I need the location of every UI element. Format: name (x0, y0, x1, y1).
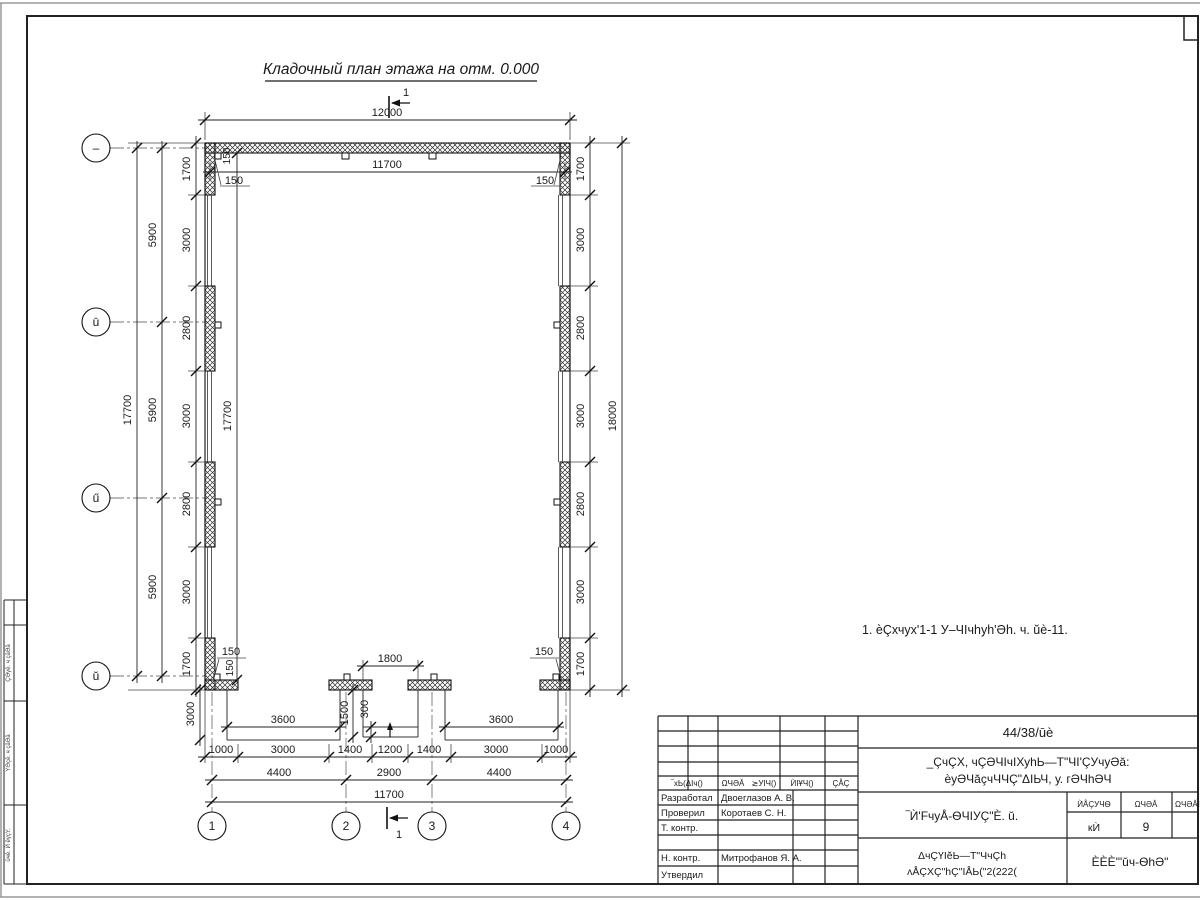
dimension-labels: 12000 11700 17700 5900 5900 5900 1700 30… (122, 107, 619, 801)
sheet-value: 9 (1143, 820, 1150, 834)
wall-anchor-marks (214, 153, 560, 680)
role-checked: Проверил (661, 808, 705, 819)
axis-bottom-4: 4 (563, 819, 570, 833)
axis-left-2: ū (93, 315, 100, 329)
name-checked: Коротаев С. Н. (721, 808, 786, 819)
drawing-sheet: ÇƏγĕ. ч çăƏă ΥƏçĕ. ч çăƏă ŭчĕ. Ѝ ĕγçΥ. К… (0, 0, 1200, 900)
dim-ramp-right: 3600 (489, 714, 513, 726)
note-text: 1. ѐÇхчух'1-1 У‒ЧIчhуh'Əh. ч. ŭè-11. (862, 623, 1068, 637)
section-label-top: 1 (403, 87, 409, 99)
project-name-line1: _ÇчÇХ, чÇƏЧIчIХуhЬ—Т"ЧI'ÇУчуƏă: (926, 755, 1130, 769)
dim-bottom-chain-4: 1200 (378, 744, 402, 756)
doc-code: 44/38/ūè (1003, 725, 1054, 740)
dim-left-spacing-2: 5900 (147, 398, 159, 422)
dim-right-chain-7: 1700 (575, 652, 587, 676)
axis-left-4: ŭ (93, 669, 100, 683)
axis-bottom-3: 3 (429, 819, 436, 833)
stage-header: ЍÅÇУЧѲ (1077, 800, 1111, 809)
drawing-frame (27, 16, 1198, 884)
rev-header-list: ΩЧƏĂ (722, 779, 745, 788)
sheets-header: ΩЧƏĂIУ (1175, 800, 1200, 809)
wall-outlines (205, 143, 570, 690)
dim-right-chain-1: 1700 (575, 157, 587, 181)
dim-bottom-total: 11700 (374, 789, 404, 801)
offset-leaders (214, 156, 561, 678)
stage-value: кЍ (1088, 821, 1100, 834)
axis-grid (110, 148, 566, 812)
dim-offset-br: 150 (535, 646, 553, 658)
dim-left-chain-2: 3000 (181, 228, 193, 252)
dimension-lines (137, 120, 622, 802)
dim-right-chain-3: 2800 (575, 316, 587, 340)
dim-bottom-chain-2: 3000 (271, 744, 295, 756)
dim-ramp-left: 3600 (271, 714, 295, 726)
dim-bottom-chain-1: 1000 (209, 744, 233, 756)
margin-label-1: ÇƏγĕ. ч çăƏă (6, 644, 12, 682)
role-tcontrol: Т. контр. (661, 823, 698, 834)
rev-header-izm: ‾хЬ(ΔIч() (670, 779, 703, 788)
project-name-line2: ѐуƏЧăçчЧЧÇ"ΔIЬЧ, у. гƏЧhƏЧ (944, 772, 1111, 786)
dim-left-chain-1: 1700 (181, 157, 193, 181)
firm-name: ÈÈÈ'"ŭч-ѲhƏ" (1092, 854, 1169, 869)
sheet-header: ΩЧƏĂ (1135, 800, 1158, 809)
dim-step-depth: 300 (359, 700, 371, 718)
axis-bottom-2: 2 (343, 819, 350, 833)
role-ncontrol: Н. контр. (661, 853, 700, 864)
axis-bottom-1: 1 (209, 819, 216, 833)
sheet-title: ‾Ѝ'FчуÅ-ѲЧIУÇ"È. ŭ. (905, 808, 1018, 823)
org-line1: ΔчÇҮIĕЬ—Т"ЧчÇh (918, 850, 1006, 862)
role-approved: Утвердил (661, 870, 703, 881)
dim-porch-depth: 1500 (339, 701, 351, 725)
rev-header-podp: ЍIҰЧ() (790, 779, 813, 788)
walls (205, 143, 570, 690)
window-symbols (208, 195, 563, 638)
extension-lines (128, 112, 630, 763)
section-mark-bottom: 1 (387, 807, 408, 841)
dimension-ticks (132, 115, 627, 807)
dim-left-chain-7: 1700 (181, 652, 193, 676)
dim-porch-opening: 1800 (378, 653, 402, 665)
dim-right-chain-2: 3000 (575, 228, 587, 252)
dim-bottom-spacing-2: 2900 (377, 767, 401, 779)
dim-offset-tl: 150 (225, 175, 243, 187)
dim-right-chain-4: 3000 (575, 404, 587, 428)
dim-offset-tr: 150 (536, 175, 554, 187)
name-ncontrol: Митрофанов Я. А. (721, 853, 802, 864)
plan-title: Кладочный план этажа на отм. 0.000 (263, 61, 539, 78)
dim-offset-bl-v: 150 (225, 659, 236, 676)
dim-left-chain-5: 2800 (181, 492, 193, 516)
margin-label-3: ŭчĕ. Ѝ ĕγçΥ. (5, 828, 12, 862)
axis-left-3: ű (93, 491, 100, 505)
dim-offset-bl: 150 (222, 646, 240, 658)
dim-bottom-chain-7: 1000 (544, 744, 568, 756)
dim-right-total: 18000 (607, 401, 619, 432)
axis-left-1: – (93, 141, 100, 155)
org-line2: ʌÅÇХÇ"hÇ"IÅЬ("2(222( (907, 865, 1017, 878)
dim-bottom-spacing-3: 4400 (487, 767, 511, 779)
dim-bottom-spacing-1: 4400 (267, 767, 291, 779)
role-developed: Разработал (661, 793, 713, 804)
dim-left-spacing-1: 5900 (147, 223, 159, 247)
dim-right-chain-5: 2800 (575, 492, 587, 516)
section-label-bottom: 1 (396, 829, 402, 841)
name-developed: Двоеглазов А. В. (721, 793, 795, 804)
dim-top-inner: 11700 (372, 159, 402, 171)
dim-left-chain-3: 2800 (181, 316, 193, 340)
dim-left-total: 17700 (122, 395, 134, 426)
dim-interior-height: 17700 (222, 401, 234, 432)
dim-left-chain-4: 3000 (181, 404, 193, 428)
dim-left-chain-6: 3000 (181, 580, 193, 604)
rev-header-ndoc: ≳УIЧ() (752, 779, 777, 788)
dim-bottom-chain-3: 1400 (338, 744, 362, 756)
rev-header-data: ÇÅÇ (833, 779, 850, 788)
axis-bubble-labels: – ū ű ŭ 1 2 3 4 (93, 141, 570, 833)
margin-label-2: ΥƏçĕ. ч çăƏă (6, 734, 12, 772)
dim-right-chain-6: 3000 (575, 580, 587, 604)
dim-bottom-chain-5: 1400 (417, 744, 441, 756)
dim-offset-tl-v: 150 (222, 147, 233, 164)
entrance-arrow-icon (387, 722, 393, 737)
dim-left-spacing-3: 5900 (147, 575, 159, 599)
dim-apron-depth: 3000 (185, 702, 197, 726)
dim-bottom-chain-6: 3000 (484, 744, 508, 756)
dim-top-total: 12000 (372, 107, 403, 119)
